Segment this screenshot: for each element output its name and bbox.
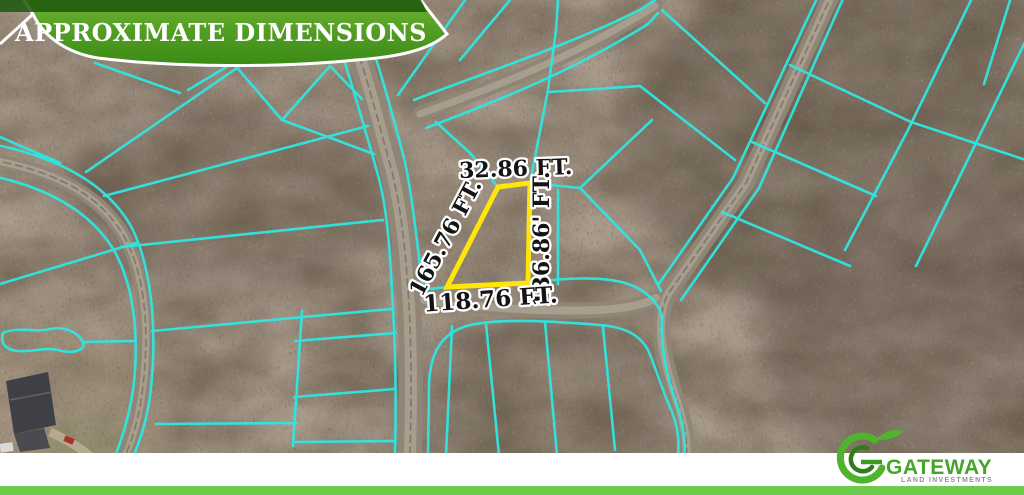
lot-marketing-graphic: 32.86 FT. 165.76 FT. 136.86' FT. 118.76 … [0,0,1024,495]
dimension-label-top: 32.86 FT. [459,154,573,184]
brand-name: GATEWAY [886,456,992,479]
aerial-map: 32.86 FT. 165.76 FT. 136.86' FT. 118.76 … [0,0,1024,495]
banner-title: APPROXIMATE DIMENSIONS [14,18,427,47]
brand-tagline: LAND INVESTMENTS [901,477,993,484]
footer-green-bar [0,486,1024,495]
